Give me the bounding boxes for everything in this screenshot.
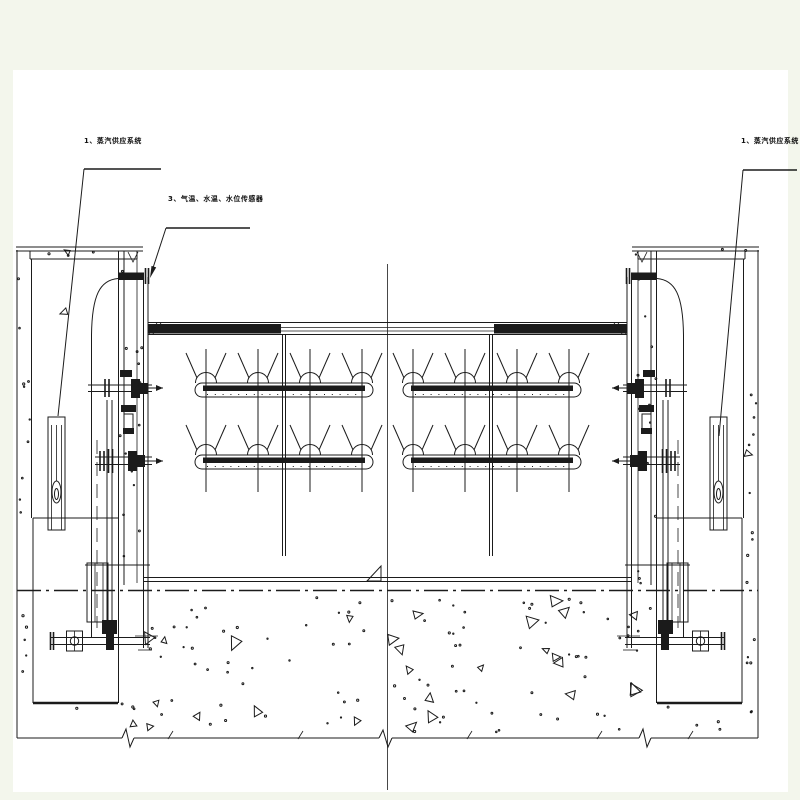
pipe-elbow	[92, 279, 119, 336]
pipe-row	[195, 455, 373, 469]
drain-pipe-right	[617, 620, 725, 651]
flanged-pipe-right-lower	[612, 449, 680, 473]
gate-elevation-drawing	[0, 0, 800, 800]
heater-unit-right	[710, 417, 727, 530]
drain-pipe-left	[50, 620, 158, 651]
pipe-row	[195, 383, 373, 397]
flanged-pipe-left-lower	[95, 449, 163, 473]
right-pier	[612, 247, 759, 738]
left-pier	[16, 247, 163, 738]
centerlines	[17, 264, 758, 790]
annotation-leaders	[58, 169, 797, 436]
flanged-pipe-right-upper	[612, 370, 687, 398]
concrete-texture	[18, 248, 757, 732]
flanged-pipe-left-upper	[88, 370, 163, 398]
heating-pipe-rows	[195, 383, 581, 469]
level-marker	[367, 566, 381, 581]
drawing-sheet: 1、蒸汽供应系统 3、气温、水温、水位传感器 1、蒸汽供应系统	[0, 0, 800, 800]
heater-unit-left	[48, 417, 65, 530]
